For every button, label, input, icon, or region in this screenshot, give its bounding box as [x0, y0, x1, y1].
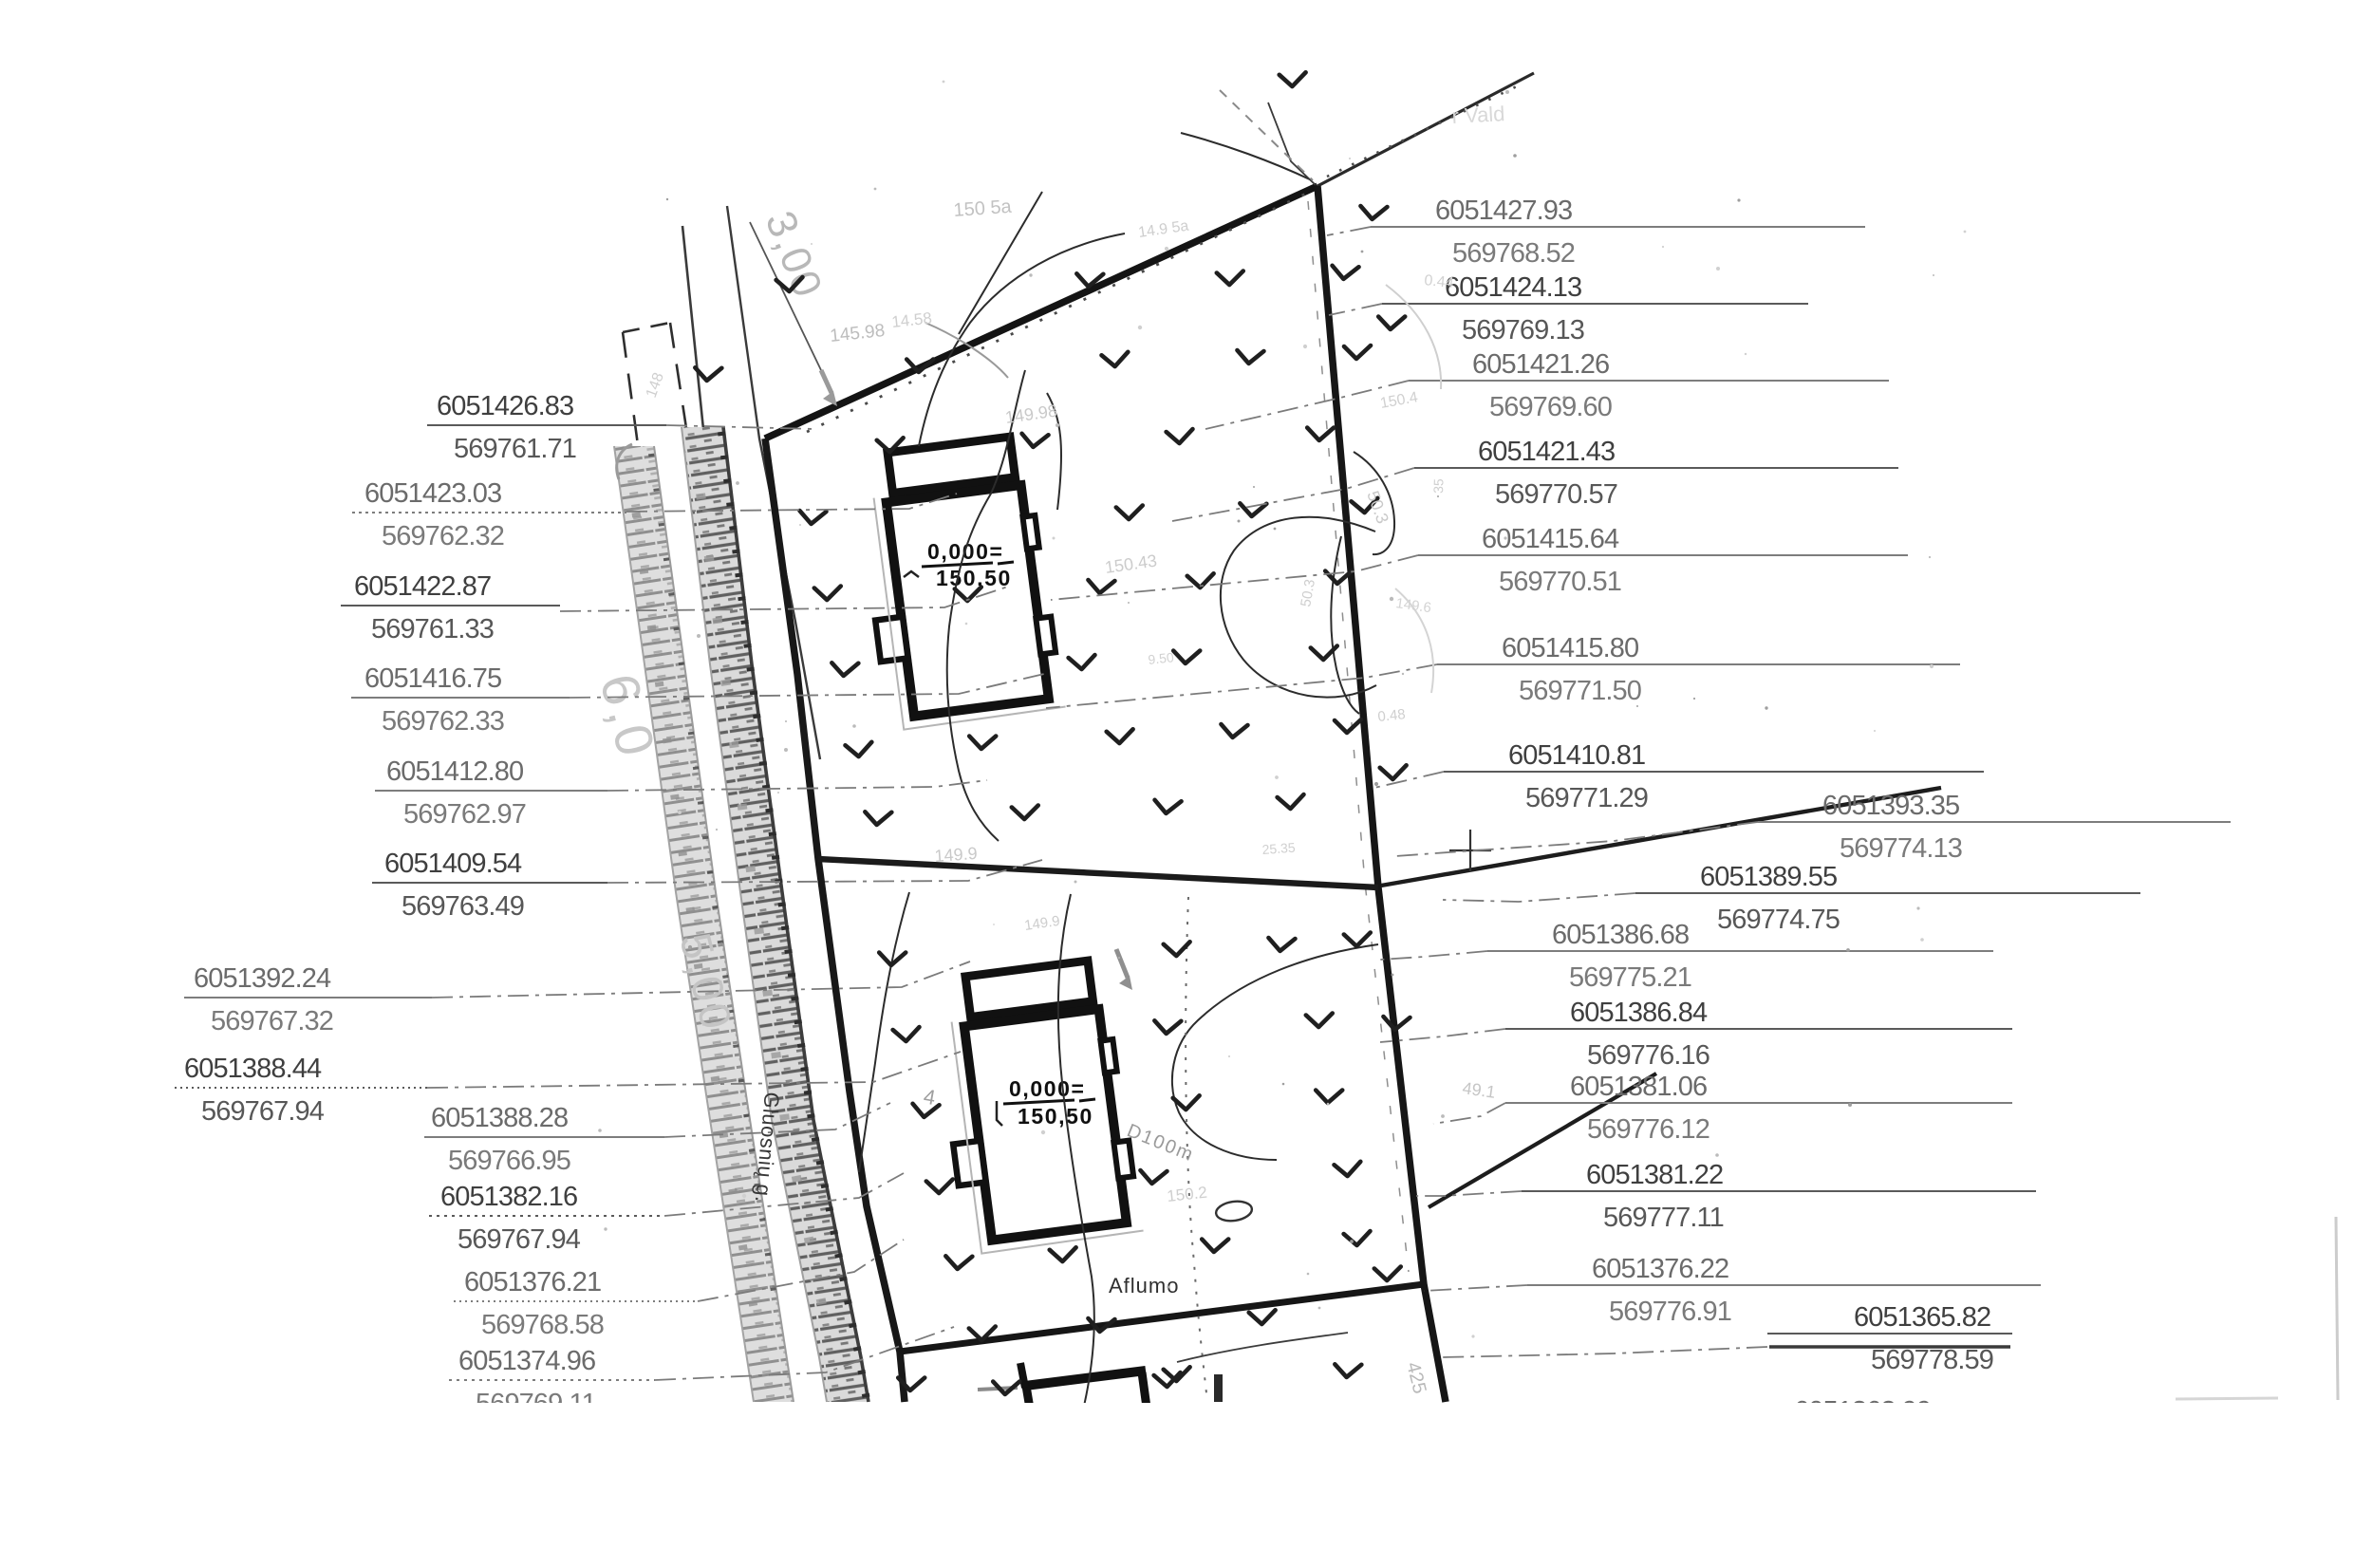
svg-text:0,000=: 0,000=: [1009, 1076, 1086, 1101]
svg-text:6051381.06: 6051381.06: [1570, 1072, 1707, 1102]
svg-text:6051374.96: 6051374.96: [458, 1346, 595, 1376]
svg-text:569774.13: 569774.13: [1840, 833, 1962, 864]
svg-text:6051382.16: 6051382.16: [440, 1182, 577, 1212]
svg-text:150 5a: 150 5a: [953, 196, 1013, 221]
svg-text:569767.94: 569767.94: [201, 1096, 325, 1127]
svg-text:Aflumo: Aflumo: [1109, 1274, 1179, 1297]
svg-text:0.44: 0.44: [1424, 272, 1455, 291]
svg-text:569763.49: 569763.49: [402, 891, 524, 922]
svg-text:6051381.22: 6051381.22: [1586, 1160, 1723, 1190]
svg-text:569770.57: 569770.57: [1495, 479, 1617, 510]
svg-text:6051392.24: 6051392.24: [194, 963, 331, 994]
svg-text:569777.11: 569777.11: [1603, 1203, 1724, 1233]
svg-text:6051412.80: 6051412.80: [386, 756, 523, 787]
svg-text:6051421.26: 6051421.26: [1472, 349, 1609, 380]
svg-text:6051388.44: 6051388.44: [184, 1054, 322, 1084]
svg-text:6051415.80: 6051415.80: [1502, 633, 1638, 663]
svg-text:6051393.35: 6051393.35: [1822, 791, 1959, 821]
svg-text:0.48: 0.48: [1377, 706, 1407, 725]
svg-text:569769.13: 569769.13: [1462, 315, 1584, 345]
svg-text:9.50: 9.50: [1148, 649, 1175, 667]
svg-text:6051376.22: 6051376.22: [1592, 1254, 1728, 1284]
svg-text:6051410.81: 6051410.81: [1508, 740, 1645, 771]
svg-text:6051421.43: 6051421.43: [1478, 437, 1615, 467]
svg-text:149.9: 149.9: [934, 844, 978, 866]
svg-text:6051424.13: 6051424.13: [1445, 272, 1581, 303]
svg-text:569769.60: 569769.60: [1489, 392, 1612, 422]
svg-text:6051409.54: 6051409.54: [384, 849, 522, 879]
svg-text:6051386.68: 6051386.68: [1552, 920, 1689, 950]
svg-text:6051422.87: 6051422.87: [354, 571, 491, 602]
svg-text:150,50: 150,50: [936, 566, 1012, 590]
svg-text:569770.51: 569770.51: [1499, 567, 1621, 597]
svg-text:6051427.93: 6051427.93: [1435, 196, 1572, 226]
svg-text:569768.52: 569768.52: [1452, 238, 1575, 269]
svg-text:6051386.84: 6051386.84: [1570, 998, 1708, 1028]
svg-text:569775.21: 569775.21: [1569, 962, 1691, 993]
svg-text:569767.32: 569767.32: [211, 1006, 333, 1036]
svg-text:r Vald: r Vald: [1451, 102, 1505, 128]
svg-text:569778.59: 569778.59: [1871, 1345, 1993, 1375]
svg-text:35: 35: [1430, 478, 1447, 494]
svg-text:6051426.83: 6051426.83: [437, 391, 573, 421]
svg-text:6051376.21: 6051376.21: [464, 1267, 601, 1297]
svg-text:25.35: 25.35: [1261, 840, 1296, 857]
svg-text:569766.95: 569766.95: [448, 1146, 570, 1176]
svg-text:569761.33: 569761.33: [371, 614, 494, 644]
svg-text:150,50: 150,50: [1018, 1104, 1093, 1129]
svg-text:569776.16: 569776.16: [1587, 1040, 1709, 1071]
svg-text:6051416.75: 6051416.75: [364, 663, 501, 694]
svg-text:569776.91: 569776.91: [1609, 1297, 1731, 1327]
svg-text:6051423.03: 6051423.03: [364, 478, 501, 509]
svg-text:569771.29: 569771.29: [1525, 783, 1648, 813]
svg-text:569762.32: 569762.32: [382, 521, 504, 551]
svg-text:569762.97: 569762.97: [403, 799, 526, 830]
svg-text:569774.75: 569774.75: [1717, 905, 1840, 935]
svg-text:6051389.55: 6051389.55: [1700, 862, 1837, 892]
svg-text:569762.33: 569762.33: [382, 706, 504, 737]
svg-text:6051415.64: 6051415.64: [1482, 524, 1619, 554]
svg-text:569767.94: 569767.94: [458, 1224, 581, 1255]
svg-text:569771.50: 569771.50: [1519, 676, 1641, 706]
svg-text:569768.58: 569768.58: [481, 1310, 604, 1340]
svg-text:6051388.28: 6051388.28: [431, 1103, 568, 1133]
svg-text:569761.71: 569761.71: [454, 434, 576, 464]
svg-text:569776.12: 569776.12: [1587, 1114, 1709, 1145]
svg-text:6051365.82: 6051365.82: [1854, 1302, 1990, 1333]
